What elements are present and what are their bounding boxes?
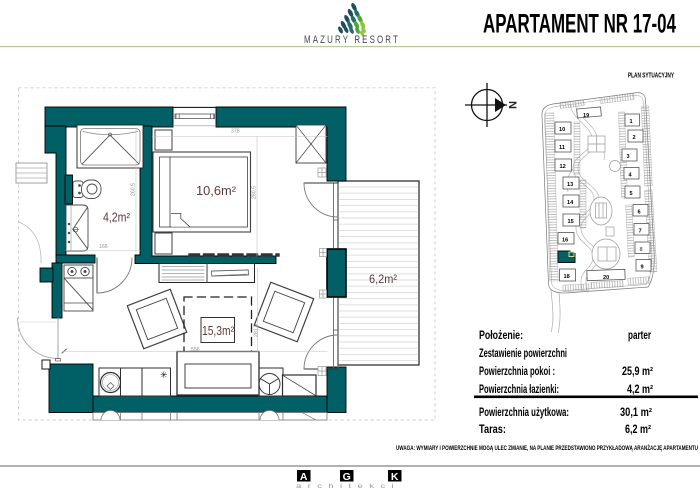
svg-text:7: 7 [639, 229, 642, 235]
svg-text:Powierzchnia pokoi :: Powierzchnia pokoi : [479, 366, 555, 378]
svg-text:6,2 m²: 6,2 m² [625, 424, 651, 436]
svg-text:260,5: 260,5 [131, 183, 137, 196]
svg-text:16: 16 [562, 238, 568, 244]
svg-text:30,1 m²: 30,1 m² [620, 407, 652, 419]
svg-text:APARTAMENT NR 17-04: APARTAMENT NR 17-04 [483, 9, 676, 39]
svg-text:166: 166 [99, 244, 108, 250]
svg-text:3: 3 [627, 154, 630, 160]
svg-text:Położenie:: Położenie: [479, 330, 523, 342]
svg-text:14: 14 [567, 200, 574, 206]
svg-text:Powierzchnia łazienki:: Powierzchnia łazienki: [479, 384, 559, 396]
svg-text:Zestawienie powierzchni: Zestawienie powierzchni [479, 348, 567, 360]
svg-text:10: 10 [559, 127, 565, 133]
svg-text:4,2 m²: 4,2 m² [627, 384, 653, 396]
svg-text:1: 1 [630, 119, 633, 125]
svg-text:556: 556 [191, 347, 200, 353]
svg-text:11: 11 [559, 145, 565, 151]
svg-text:K: K [391, 471, 399, 483]
svg-text:15,3m²: 15,3m² [202, 324, 234, 338]
svg-text:architekci: architekci [296, 484, 400, 490]
svg-text:Taras:: Taras: [479, 424, 506, 436]
svg-text:parter: parter [628, 330, 651, 342]
svg-text:15: 15 [568, 219, 574, 225]
svg-text:13: 13 [567, 182, 573, 188]
svg-text:8: 8 [640, 247, 643, 253]
svg-text:19: 19 [583, 113, 589, 119]
svg-text:2: 2 [633, 135, 636, 141]
svg-text:281,5: 281,5 [254, 324, 260, 337]
svg-text:PLAN SYTUACYJNY: PLAN SYTUACYJNY [628, 73, 674, 80]
svg-text:Powierzchnia użytkowa:: Powierzchnia użytkowa: [479, 407, 569, 419]
svg-text:378: 378 [231, 129, 240, 135]
svg-text:G: G [343, 471, 351, 483]
svg-text:N: N [506, 101, 518, 109]
svg-text:10,6m²: 10,6m² [196, 183, 237, 198]
svg-text:MAZURY RESORT: MAZURY RESORT [304, 34, 400, 46]
svg-text:A: A [300, 471, 308, 483]
svg-text:280,5: 280,5 [252, 186, 258, 199]
svg-text:20: 20 [603, 275, 609, 281]
svg-text:4,2m²: 4,2m² [103, 211, 130, 225]
svg-text:18: 18 [564, 274, 570, 280]
svg-text:5: 5 [630, 191, 633, 197]
svg-text:25,9 m²: 25,9 m² [622, 366, 653, 378]
svg-text:6,2m²: 6,2m² [369, 272, 397, 286]
svg-text:UWAGA: WYMIARY I POWIERZCHNIE: UWAGA: WYMIARY I POWIERZCHNIE MOGĄ ULEC … [396, 445, 698, 452]
svg-text:9: 9 [641, 265, 644, 271]
svg-text:✳: ✳ [160, 370, 168, 380]
svg-text:6: 6 [638, 210, 641, 216]
svg-text:12: 12 [560, 164, 566, 170]
